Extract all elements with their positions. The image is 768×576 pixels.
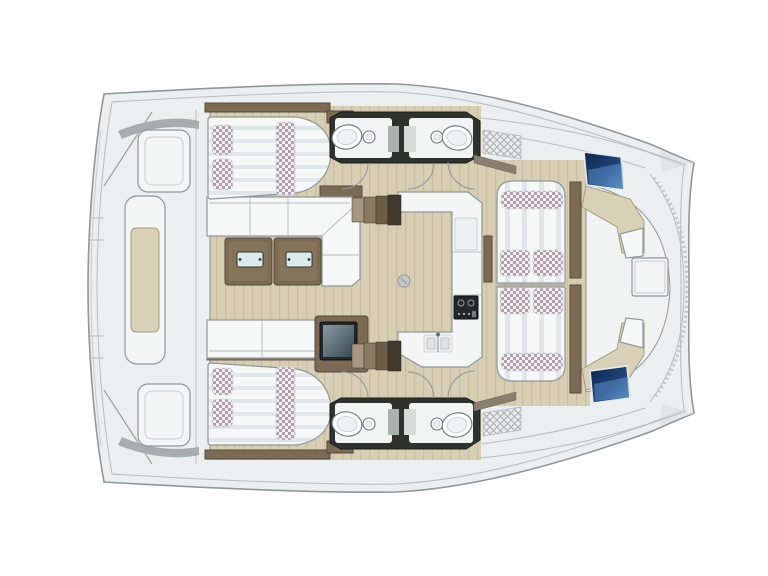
- toilet: [363, 418, 375, 430]
- floor-plan-page: [0, 0, 768, 576]
- shower-column: [404, 409, 416, 435]
- stove: [454, 296, 478, 319]
- lounge-cushion: [500, 250, 530, 276]
- mast-post: [484, 236, 492, 282]
- toilet: [431, 131, 443, 143]
- stern-step-starboard: [138, 384, 190, 446]
- stairs-starboard: [352, 341, 401, 371]
- wardrobe-strip-port: [205, 103, 330, 112]
- counter-hatch: [455, 218, 477, 250]
- cabinet-top-stairs: [320, 186, 362, 197]
- bulkhead-post: [570, 285, 581, 393]
- aft-cabin-starboard: [208, 363, 331, 445]
- lounge-cushion: [533, 288, 563, 314]
- bed-pillow: [212, 368, 233, 395]
- lounge-cushion: [500, 288, 530, 314]
- shower-column: [404, 126, 416, 152]
- faucet-icon: [436, 333, 440, 337]
- floor-plan-canvas: [0, 0, 768, 576]
- bed-pillow: [212, 159, 233, 190]
- aft-cabin-port: [208, 117, 331, 199]
- stern-step-port: [138, 130, 190, 192]
- bed-pillow: [212, 125, 233, 155]
- wardrobe-strip-starboard: [205, 450, 330, 459]
- stern-bench-cushion: [131, 228, 159, 332]
- toilet: [363, 131, 375, 143]
- stairs-port: [352, 195, 401, 225]
- shower-column: [388, 126, 399, 152]
- galley-sink: [424, 333, 452, 353]
- toilet: [431, 418, 443, 430]
- bulkhead-post: [570, 182, 581, 278]
- shower-column: [388, 409, 399, 435]
- cockpit-table: [632, 258, 668, 296]
- lounge-bolster: [501, 191, 563, 209]
- lounge-cushion: [533, 250, 563, 276]
- bed-runner: [276, 367, 295, 440]
- bed-runner: [276, 122, 295, 195]
- bed-pillow: [212, 399, 233, 427]
- lounge-bolster: [501, 353, 563, 371]
